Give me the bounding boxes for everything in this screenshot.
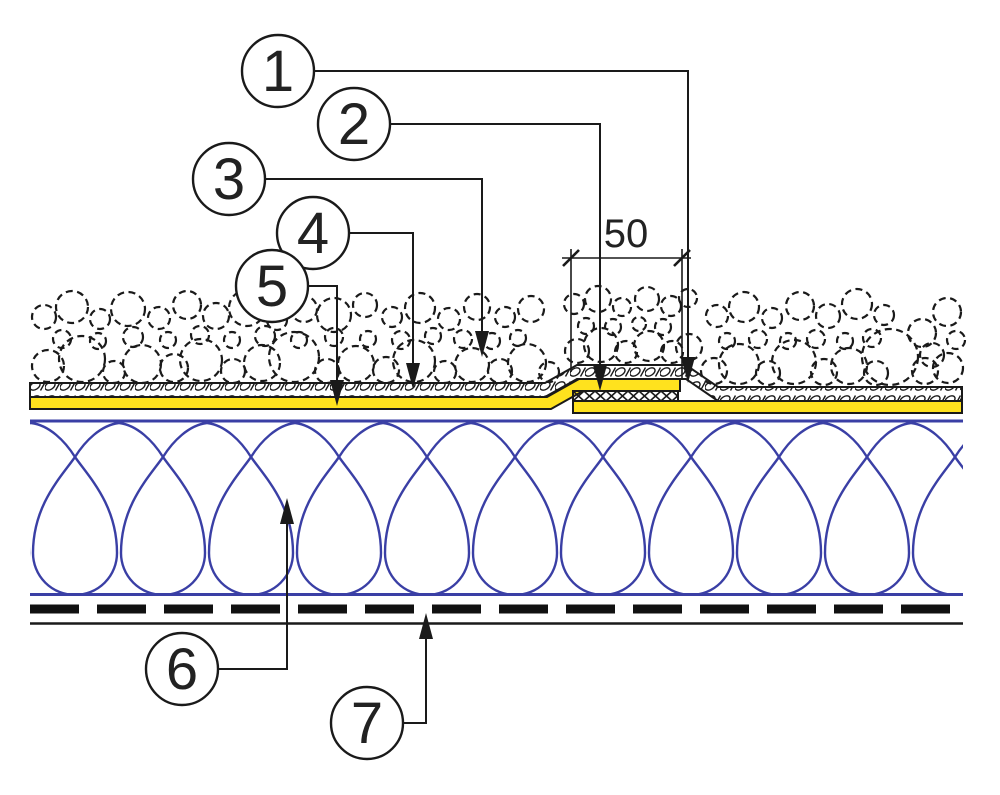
gravel-stone xyxy=(221,359,245,383)
gravel-stone xyxy=(123,345,161,383)
gravel-stone xyxy=(908,319,936,347)
gravel-stone xyxy=(244,345,280,381)
gravel-stone xyxy=(315,359,339,383)
gravel-stone xyxy=(32,350,64,382)
gravel-stone xyxy=(837,333,853,349)
gravel-stone xyxy=(661,341,683,363)
gravel-stone xyxy=(947,331,965,349)
gravel-stone xyxy=(103,361,125,383)
protection-fleece-layer xyxy=(30,365,962,401)
gravel-stone xyxy=(148,307,170,329)
arrowhead-7 xyxy=(419,613,433,639)
gravel-stone xyxy=(655,319,671,335)
gravel-stone xyxy=(729,292,759,322)
gravel-stone xyxy=(224,332,240,348)
gravel-stone xyxy=(816,304,840,328)
gravel-stone xyxy=(842,289,872,319)
lower-membrane-layer xyxy=(573,401,962,413)
gravel-stone xyxy=(325,328,343,346)
gravel-stone xyxy=(933,353,963,383)
gravel-ballast-layer xyxy=(32,286,965,385)
gravel-stone xyxy=(373,357,399,383)
gravel-stone xyxy=(111,292,145,326)
gravel-stone xyxy=(495,307,515,327)
leader-2 xyxy=(390,124,600,365)
gravel-stone xyxy=(518,296,544,322)
gravel-stone xyxy=(933,298,961,326)
gravel-stone xyxy=(635,287,659,311)
callout-6-label: 6 xyxy=(166,637,198,702)
gravel-stone xyxy=(32,305,56,329)
gravel-stone xyxy=(191,326,209,344)
gravel-stone xyxy=(317,298,351,332)
gravel-stone xyxy=(269,332,319,382)
gravel-stone xyxy=(706,305,728,327)
gravel-stone xyxy=(382,307,402,327)
gravel-stone xyxy=(874,305,894,325)
gravel-stone xyxy=(786,292,814,320)
callout-2-label: 2 xyxy=(338,92,370,157)
gravel-stone xyxy=(756,361,780,385)
gravel-stone xyxy=(90,333,106,349)
gravel-stone xyxy=(510,330,526,346)
gravel-stone xyxy=(180,339,222,381)
gravel-stone xyxy=(353,293,377,317)
gravel-stone xyxy=(749,330,767,348)
callout-2: 2 xyxy=(318,88,607,391)
gravel-stone xyxy=(455,348,489,382)
callout-7-label: 7 xyxy=(351,691,383,756)
gravel-stone xyxy=(360,331,376,347)
insulation-layer xyxy=(30,421,963,595)
gravel-stone xyxy=(56,291,88,323)
callout-7: 7 xyxy=(331,613,433,759)
gravel-stone xyxy=(59,336,105,382)
gravel-stone xyxy=(585,286,611,312)
gravel-stone xyxy=(454,330,472,348)
gravel-stone xyxy=(578,318,594,334)
gravel-stone xyxy=(719,333,735,349)
gravel-stone xyxy=(632,317,646,331)
gravel-stone xyxy=(425,328,441,344)
gravel-stone xyxy=(863,329,881,347)
gravel-stone xyxy=(634,331,664,361)
gravel-stone xyxy=(90,309,110,329)
arrowhead-3 xyxy=(475,331,489,357)
gravel-stone xyxy=(405,293,435,323)
gravel-stone xyxy=(564,294,584,314)
callout-1-label: 1 xyxy=(262,39,294,104)
insulation-hatch-area xyxy=(30,421,963,595)
gravel-stone xyxy=(762,308,782,328)
gravel-stone xyxy=(392,331,410,349)
callout-3-label: 3 xyxy=(213,147,245,212)
gravel-stone xyxy=(613,298,631,316)
gravel-stone xyxy=(173,291,201,319)
gravel-stone xyxy=(438,308,460,330)
dimension-text: 50 xyxy=(604,212,649,256)
roof-detail-drawing: 50 1 2 3 4 5 6 xyxy=(0,0,1000,795)
leader-7 xyxy=(403,639,426,723)
gravel-stone xyxy=(160,354,188,382)
gravel-stone xyxy=(160,332,176,348)
gravel-stone xyxy=(434,361,456,383)
seam-weld-layer xyxy=(573,391,678,401)
gravel-stone xyxy=(464,294,490,320)
gravel-stone xyxy=(338,346,374,382)
callout-4-label: 4 xyxy=(297,201,329,266)
callout-5-label: 5 xyxy=(256,254,288,319)
gravel-stone xyxy=(203,303,229,329)
gravel-stone xyxy=(53,330,71,348)
